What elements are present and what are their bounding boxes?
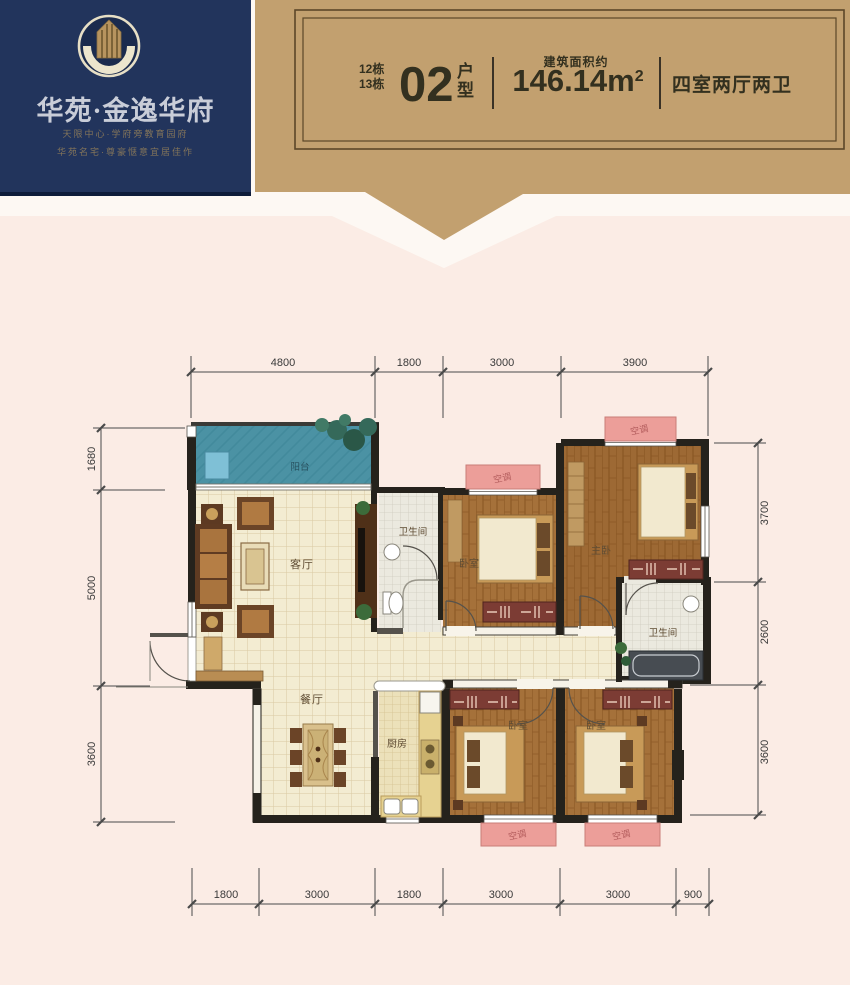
svg-text:卧室: 卧室 [459, 557, 479, 570]
svg-text:3000: 3000 [489, 889, 513, 901]
svg-text:3000: 3000 [490, 357, 514, 369]
svg-text:3000: 3000 [305, 889, 329, 901]
svg-text:阳台: 阳台 [290, 461, 309, 473]
svg-text:3600: 3600 [759, 740, 771, 764]
svg-text:2600: 2600 [759, 620, 771, 644]
svg-text:5000: 5000 [86, 576, 98, 600]
svg-text:客厅: 客厅 [290, 557, 314, 571]
svg-text:厨房: 厨房 [387, 737, 407, 750]
svg-text:1800: 1800 [397, 357, 421, 369]
svg-text:3700: 3700 [759, 501, 771, 525]
svg-text:餐厅: 餐厅 [300, 692, 324, 706]
svg-text:卧室: 卧室 [586, 719, 606, 732]
svg-text:1680: 1680 [86, 447, 98, 471]
svg-text:1800: 1800 [397, 889, 421, 901]
svg-text:卫生间: 卫生间 [399, 526, 428, 538]
svg-text:3900: 3900 [623, 357, 647, 369]
svg-text:卫生间: 卫生间 [649, 627, 678, 639]
svg-text:卧室: 卧室 [508, 719, 528, 732]
svg-text:3600: 3600 [86, 742, 98, 766]
svg-text:1800: 1800 [214, 889, 238, 901]
svg-text:主卧: 主卧 [591, 544, 611, 557]
svg-text:3000: 3000 [606, 889, 630, 901]
svg-text:900: 900 [684, 889, 702, 901]
svg-text:4800: 4800 [271, 357, 295, 369]
